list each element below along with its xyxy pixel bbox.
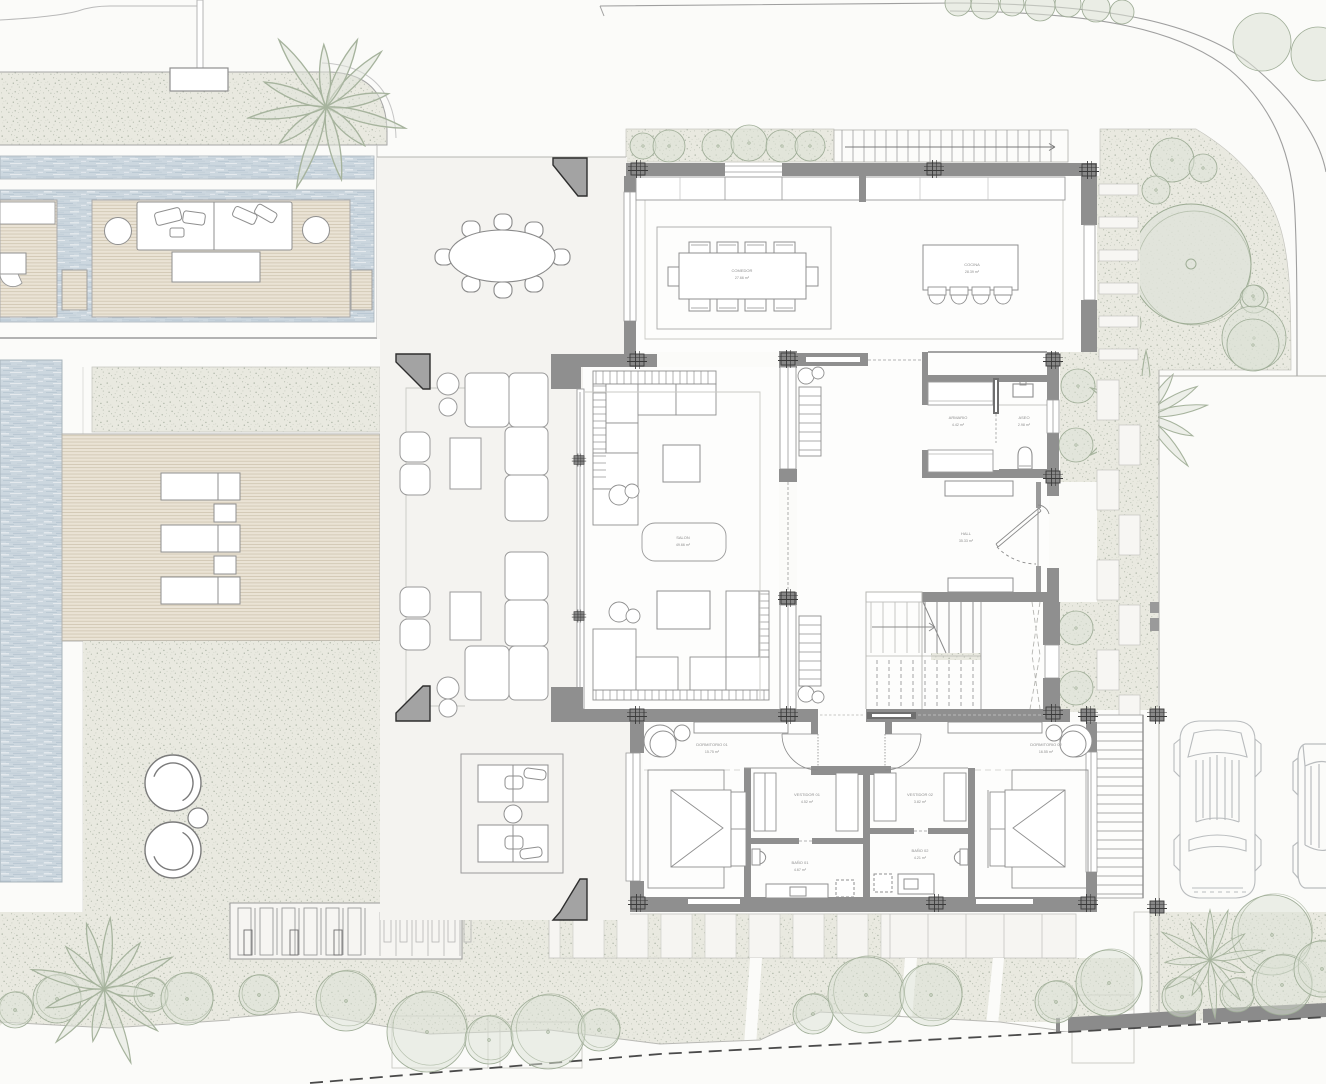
svg-text:COCINA: COCINA: [964, 262, 980, 267]
svg-text:15.75 m²: 15.75 m²: [705, 750, 720, 754]
svg-text:4.21 m²: 4.21 m²: [914, 856, 927, 860]
svg-text:BAÑO 01: BAÑO 01: [792, 860, 810, 865]
svg-text:BAÑO 02: BAÑO 02: [912, 848, 930, 853]
svg-text:16.55 m²: 16.55 m²: [1039, 750, 1054, 754]
svg-text:VESTIDOR 02: VESTIDOR 02: [907, 792, 934, 797]
svg-text:ARMARIO: ARMARIO: [949, 415, 968, 420]
svg-text:4.67 m²: 4.67 m²: [794, 868, 807, 872]
svg-text:SALON: SALON: [676, 535, 690, 540]
svg-text:VESTIDOR 01: VESTIDOR 01: [794, 792, 821, 797]
svg-text:27.66 m²: 27.66 m²: [735, 276, 750, 280]
svg-text:DORMITORIO 02: DORMITORIO 02: [1030, 742, 1062, 747]
svg-text:ASEO: ASEO: [1018, 415, 1029, 420]
svg-text:4.42 m²: 4.42 m²: [952, 423, 965, 427]
svg-text:4.52 m²: 4.52 m²: [801, 800, 814, 804]
svg-text:3.82 m²: 3.82 m²: [914, 800, 927, 804]
svg-text:2.98 m²: 2.98 m²: [1018, 423, 1031, 427]
svg-text:DORMITORIO 01: DORMITORIO 01: [696, 742, 728, 747]
svg-text:COMEDOR: COMEDOR: [732, 268, 753, 273]
svg-text:49.66 m²: 49.66 m²: [676, 543, 691, 547]
svg-text:35.33 m²: 35.33 m²: [959, 539, 974, 543]
svg-text:HALL: HALL: [961, 531, 972, 536]
svg-text:28.39 m²: 28.39 m²: [965, 270, 980, 274]
